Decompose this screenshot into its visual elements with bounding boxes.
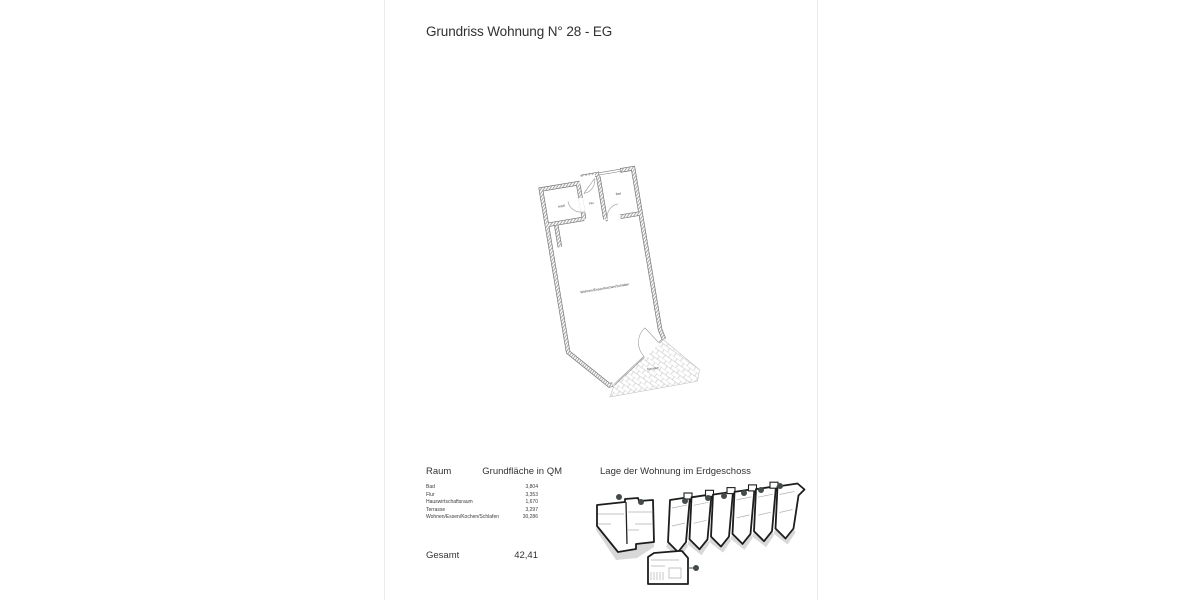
unit-dot [705,495,711,501]
table-row: Hauswirtschaftsraum 1,670 [426,499,538,507]
unit-dot [693,565,699,571]
area-table-total: Gesamt 42,41 [426,550,538,561]
label-bad: Bad [615,191,621,196]
right-building [666,482,805,558]
location-title: Lage der Wohnung im Erdgeschoss [600,466,751,477]
unit-6 [774,484,805,545]
col-area: Grundfläche in QM [482,466,562,477]
hwr-door-gap [578,198,585,213]
label-living: Wohnen/Essen/Kochen/Schlafen [580,282,630,294]
location-plan [591,480,821,600]
area-table-header: Raum Grundfläche in QM [426,466,562,477]
col-room: Raum [426,466,451,477]
page-title: Grundriss Wohnung N° 28 - EG [426,24,612,39]
row-room: Flur [426,492,435,500]
row-room: Wohnen/Essen/Kochen/Schlafen [426,514,499,522]
row-area: 1,670 [504,499,538,507]
unit-dot [616,494,622,500]
unit-dot [777,483,783,489]
unit-1 [666,493,692,558]
table-row: Wohnen/Essen/Kochen/Schlafen 30,286 [426,514,538,522]
terrace-door-leaf [645,326,659,344]
table-row: Bad 3,804 [426,484,538,492]
document-page: Grundriss Wohnung N° 28 - EG [384,0,818,600]
label-flur: Flur [589,201,595,206]
bad-door-gap [607,214,621,221]
area-table: Bad 3,804 Flur 3,353 Hauswirtschaftsraum… [426,484,538,522]
table-row: Terrasse 3,297 [426,507,538,515]
total-label: Gesamt [426,550,459,561]
unit-dot [638,499,644,505]
row-room: Terrasse [426,507,445,515]
unit-dot [758,487,764,493]
left-building [596,494,654,560]
row-area: 30,286 [504,514,538,522]
row-area: 3,804 [504,484,538,492]
unit-dot [682,498,688,504]
row-room: Bad [426,484,435,492]
table-row: Flur 3,353 [426,492,538,500]
apartment-group: HWR Flur Bad Wohnen/Essen/Kochen/Schlafe… [540,160,702,402]
row-room: Hauswirtschaftsraum [426,499,473,507]
floor-plan-drawing: HWR Flur Bad Wohnen/Essen/Kochen/Schlafe… [501,150,731,430]
unit-dot [721,493,727,499]
unit-5 [752,482,778,547]
row-area: 3,297 [504,507,538,515]
terrace-paving [602,334,702,397]
row-area: 3,353 [504,492,538,500]
label-hwr: HWR [558,204,567,209]
bottom-unit [648,551,699,584]
unit-dot [741,490,747,496]
total-value: 42,41 [514,550,538,561]
